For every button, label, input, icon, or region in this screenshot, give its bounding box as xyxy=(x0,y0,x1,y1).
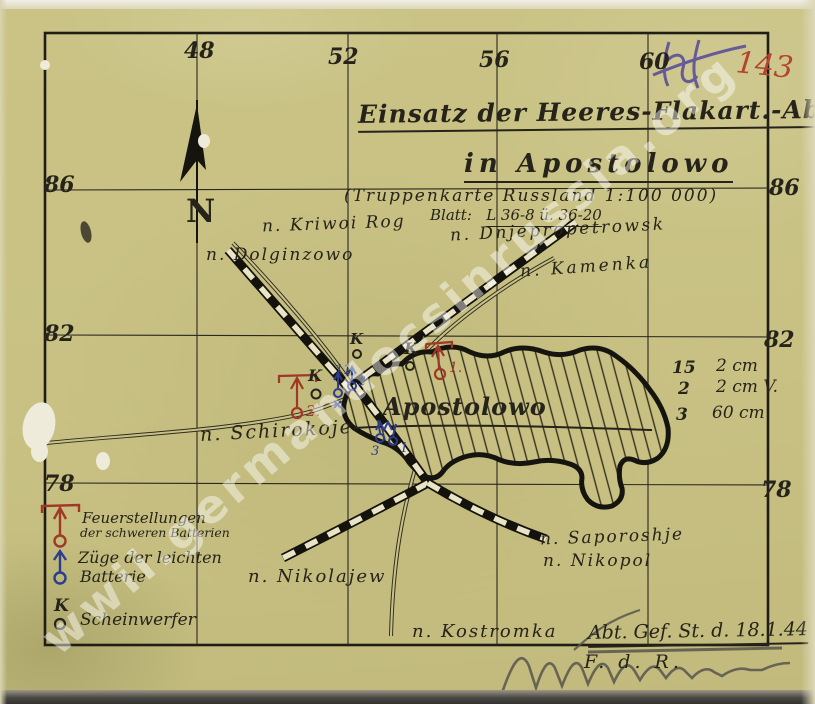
place-label-dolginzowo: n. Dolginzowo xyxy=(206,245,354,265)
equipment-caliber-2: 2 cm V. xyxy=(716,377,778,397)
grid-label-right-78: 78 xyxy=(761,477,792,503)
map-subtitle: (Truppenkarte Russland 1:100 000) xyxy=(344,186,718,206)
equipment-count-1: 15 xyxy=(672,358,696,378)
heavy-battery-number-2: 2. xyxy=(306,402,320,420)
scan-edge-bottom xyxy=(0,690,815,704)
legend-searchlight-line1: Scheinwerfer xyxy=(80,610,196,630)
light-battery-number-1: 1 xyxy=(400,441,408,456)
scan-edge-left xyxy=(0,0,7,704)
grid-label-top-48: 48 xyxy=(184,38,215,64)
light-battery-mark-11: 11 xyxy=(335,363,352,378)
ink-smudge xyxy=(78,220,93,244)
searchlight-letter-top: K xyxy=(350,330,363,348)
light-battery-number-3: 3 xyxy=(371,444,379,459)
north-label: N xyxy=(186,192,215,230)
place-label-nikopol: n. Nikopol xyxy=(543,551,652,571)
equipment-caliber-3: 60 cm xyxy=(712,403,765,423)
heavy-battery-number-1: 1. xyxy=(449,360,462,376)
grid-label-top-56: 56 xyxy=(479,47,510,73)
legend-heavy-line2: der schweren Batterien xyxy=(80,525,230,540)
railway-nikolajew xyxy=(283,483,428,558)
paper-damage-spot xyxy=(40,60,50,70)
railway-dolginzowo xyxy=(228,250,350,390)
searchlight-letter-west: K xyxy=(308,366,322,385)
place-label-nikolajew: n. Nikolajew xyxy=(248,566,386,587)
grid-label-left-82: 82 xyxy=(44,321,75,347)
legend-light-battery-symbol xyxy=(54,551,66,584)
sheet-label: Blatt: xyxy=(430,206,472,224)
paper-damage-spot xyxy=(96,452,110,470)
map-title-line1: Einsatz der Heeres-Flakart.-Abt.301 xyxy=(358,94,815,133)
certification-note: F. d. R. xyxy=(584,651,683,673)
grid-label-top-60: 60 xyxy=(639,49,670,75)
equipment-caliber-1: 2 cm xyxy=(716,356,758,376)
legend-light-line2: Batterie xyxy=(80,567,146,586)
page-number: 143 xyxy=(734,45,795,86)
place-label-kostromka: n. Kostromka xyxy=(412,621,557,642)
light-battery-number-2: 2 xyxy=(358,374,366,389)
scan-edge-top xyxy=(0,0,815,9)
legend-light-line1: Züge der leichten xyxy=(78,548,222,567)
map-title-line2: in Apostolowo xyxy=(464,149,733,183)
paper-damage-spot xyxy=(198,134,210,148)
grid-label-right-86: 86 xyxy=(769,175,800,201)
grid-label-right-82: 82 xyxy=(764,327,795,353)
paper-damage-spot xyxy=(31,441,48,462)
scan-edge-right xyxy=(801,0,815,704)
searchlight-letter-northeast: K xyxy=(404,339,418,358)
legend-heavy-battery-symbol xyxy=(42,505,79,547)
grid-label-left-78: 78 xyxy=(44,471,75,497)
equipment-count-3: 3 xyxy=(676,405,688,425)
hq-station-note: Abt. Gef. St. d. 18.1.44 xyxy=(588,618,808,648)
equipment-count-2: 2 xyxy=(678,379,690,399)
map-scan: 48 52 56 60 86 82 78 86 82 78 N 143 Eins… xyxy=(0,0,815,704)
railway-saporoshje xyxy=(428,483,546,539)
town-label-apostolowo: Apostolowo xyxy=(383,392,547,421)
legend-searchlight-letter: K xyxy=(54,596,69,616)
legend-searchlight-symbol xyxy=(55,619,65,629)
grid-label-left-86: 86 xyxy=(44,172,75,198)
grid-label-top-52: 52 xyxy=(328,44,359,70)
